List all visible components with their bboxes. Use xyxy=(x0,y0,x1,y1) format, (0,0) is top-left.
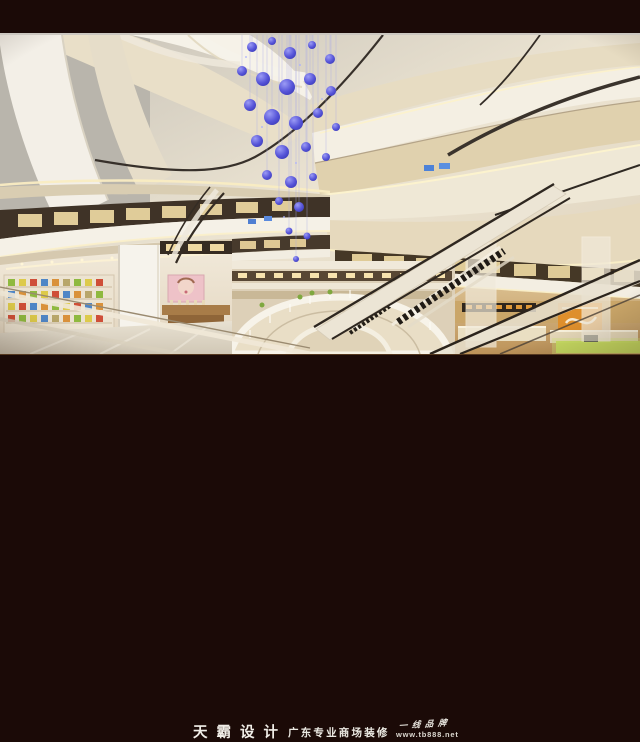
brand-website: www.tb888.net xyxy=(396,730,459,739)
watermark-caption: 天霸设计 广东专业商场装修 一线品牌 www.tb888.net xyxy=(0,352,640,400)
mall-rendering-photo xyxy=(0,33,640,355)
brand-tagline: 广东专业商场装修 xyxy=(288,725,390,740)
vignette xyxy=(0,35,640,354)
brand-name: 天霸设计 xyxy=(193,721,287,742)
mall-rendering xyxy=(0,35,640,354)
